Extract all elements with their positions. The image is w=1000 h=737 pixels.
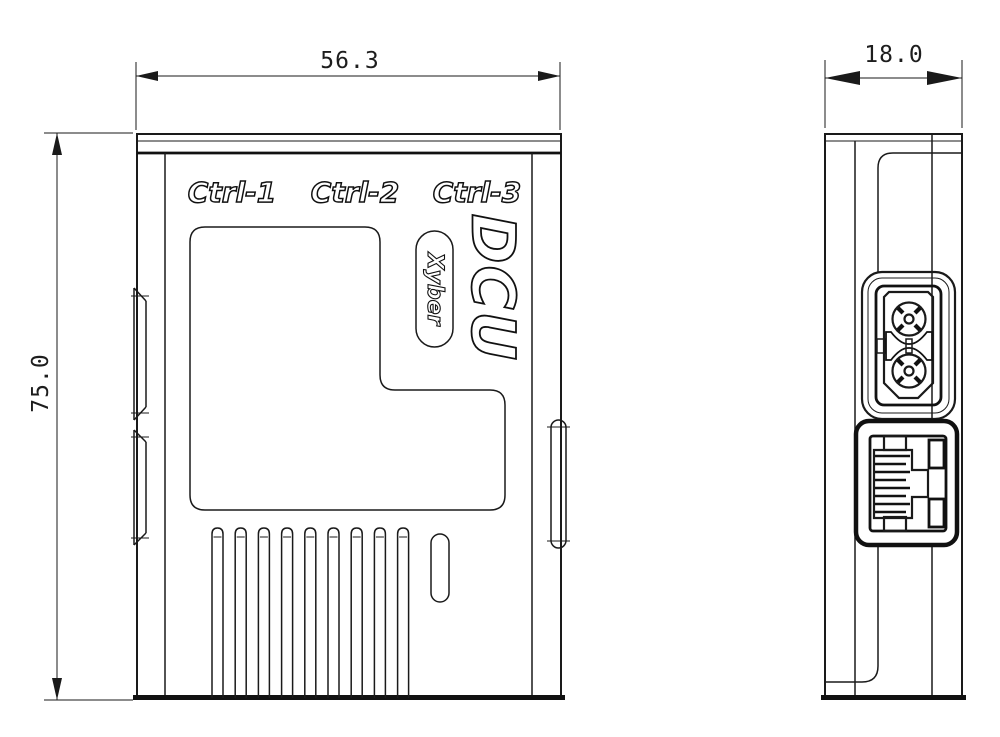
technical-drawing-canvas: Ctrl-1 Ctrl-2 Ctrl-3 DCU Xyber [0, 0, 1000, 737]
vent-slot [282, 528, 293, 698]
vent-slot [258, 528, 269, 698]
drawing-svg: Ctrl-1 Ctrl-2 Ctrl-3 DCU Xyber [0, 0, 1000, 737]
xt30-power-connector [862, 272, 955, 419]
vent-slot [374, 528, 385, 698]
dimension-front-height: 75.0 [28, 133, 133, 700]
side-depth-value: 18.0 [864, 42, 923, 68]
xt30-pin-top [893, 303, 926, 336]
vent-slot [351, 528, 362, 698]
brand-logo: Xyber [422, 251, 447, 327]
right-clip-tab [547, 420, 570, 548]
front-width-value: 56.3 [320, 48, 379, 74]
vent-slot [235, 528, 246, 698]
rj45-ethernet-port [856, 421, 957, 545]
vent-slot [212, 528, 223, 698]
vent-slot [328, 528, 339, 698]
dimension-side-depth: 18.0 [825, 42, 962, 128]
vent-slot [305, 528, 316, 698]
vent-slots [212, 528, 409, 698]
xt30-pin-bottom [893, 355, 926, 388]
ctrl1-label: Ctrl-1 [188, 176, 276, 209]
led-window [431, 534, 449, 602]
port-labels: Ctrl-1 Ctrl-2 Ctrl-3 [188, 176, 521, 209]
product-logo: DCU [457, 214, 527, 363]
side-view [821, 134, 966, 699]
ctrl2-label: Ctrl-2 [311, 176, 399, 209]
front-height-value: 75.0 [28, 353, 54, 412]
dimension-front-width: 56.3 [136, 48, 560, 130]
front-view: Ctrl-1 Ctrl-2 Ctrl-3 DCU Xyber [131, 134, 570, 699]
vent-slot [398, 528, 409, 698]
left-clip-tab-lower [131, 430, 149, 545]
ctrl3-label: Ctrl-3 [433, 176, 521, 209]
left-clip-tab-upper [131, 288, 149, 420]
brand-badge: Xyber [416, 231, 453, 347]
